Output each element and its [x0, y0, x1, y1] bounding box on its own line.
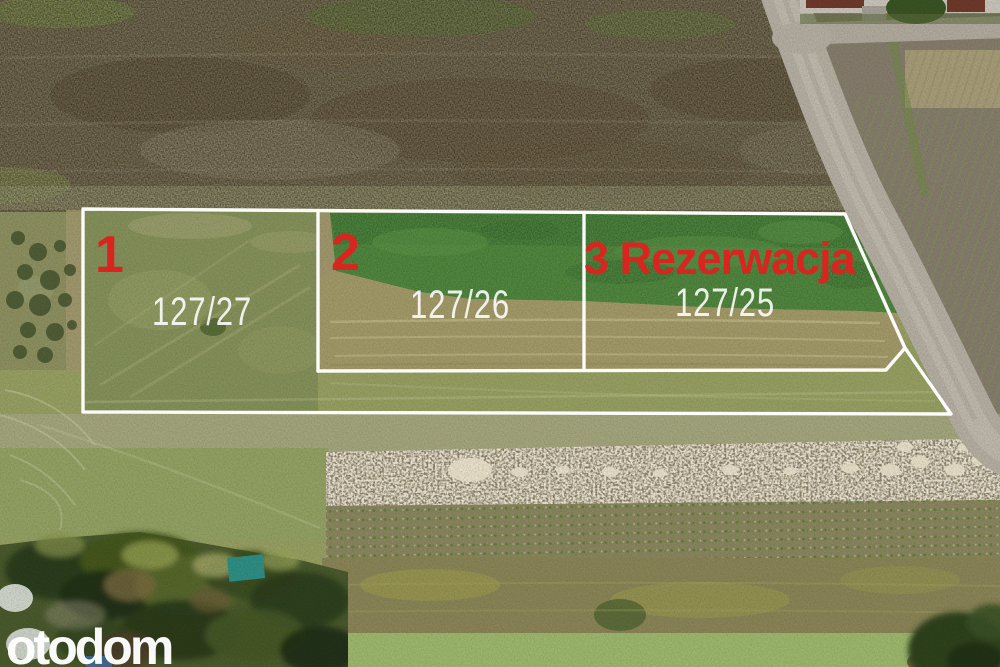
otodom-logo: otodom	[6, 622, 171, 667]
annotation-layer: 1 2 3 Rezerwacja 127/27 127/26 127/25 ot…	[0, 0, 1000, 667]
plot-3-parcel-number: 127/25	[639, 283, 811, 323]
plot-1-label: 1	[95, 229, 124, 281]
plot-1-parcel-number: 127/27	[116, 292, 288, 332]
plot-3-label: 3 Rezerwacja	[584, 236, 855, 281]
plot-2-label: 2	[331, 227, 360, 279]
plot-2-parcel-number: 127/26	[374, 285, 546, 325]
aerial-listing-photo: 1 2 3 Rezerwacja 127/27 127/26 127/25 ot…	[0, 0, 1000, 667]
